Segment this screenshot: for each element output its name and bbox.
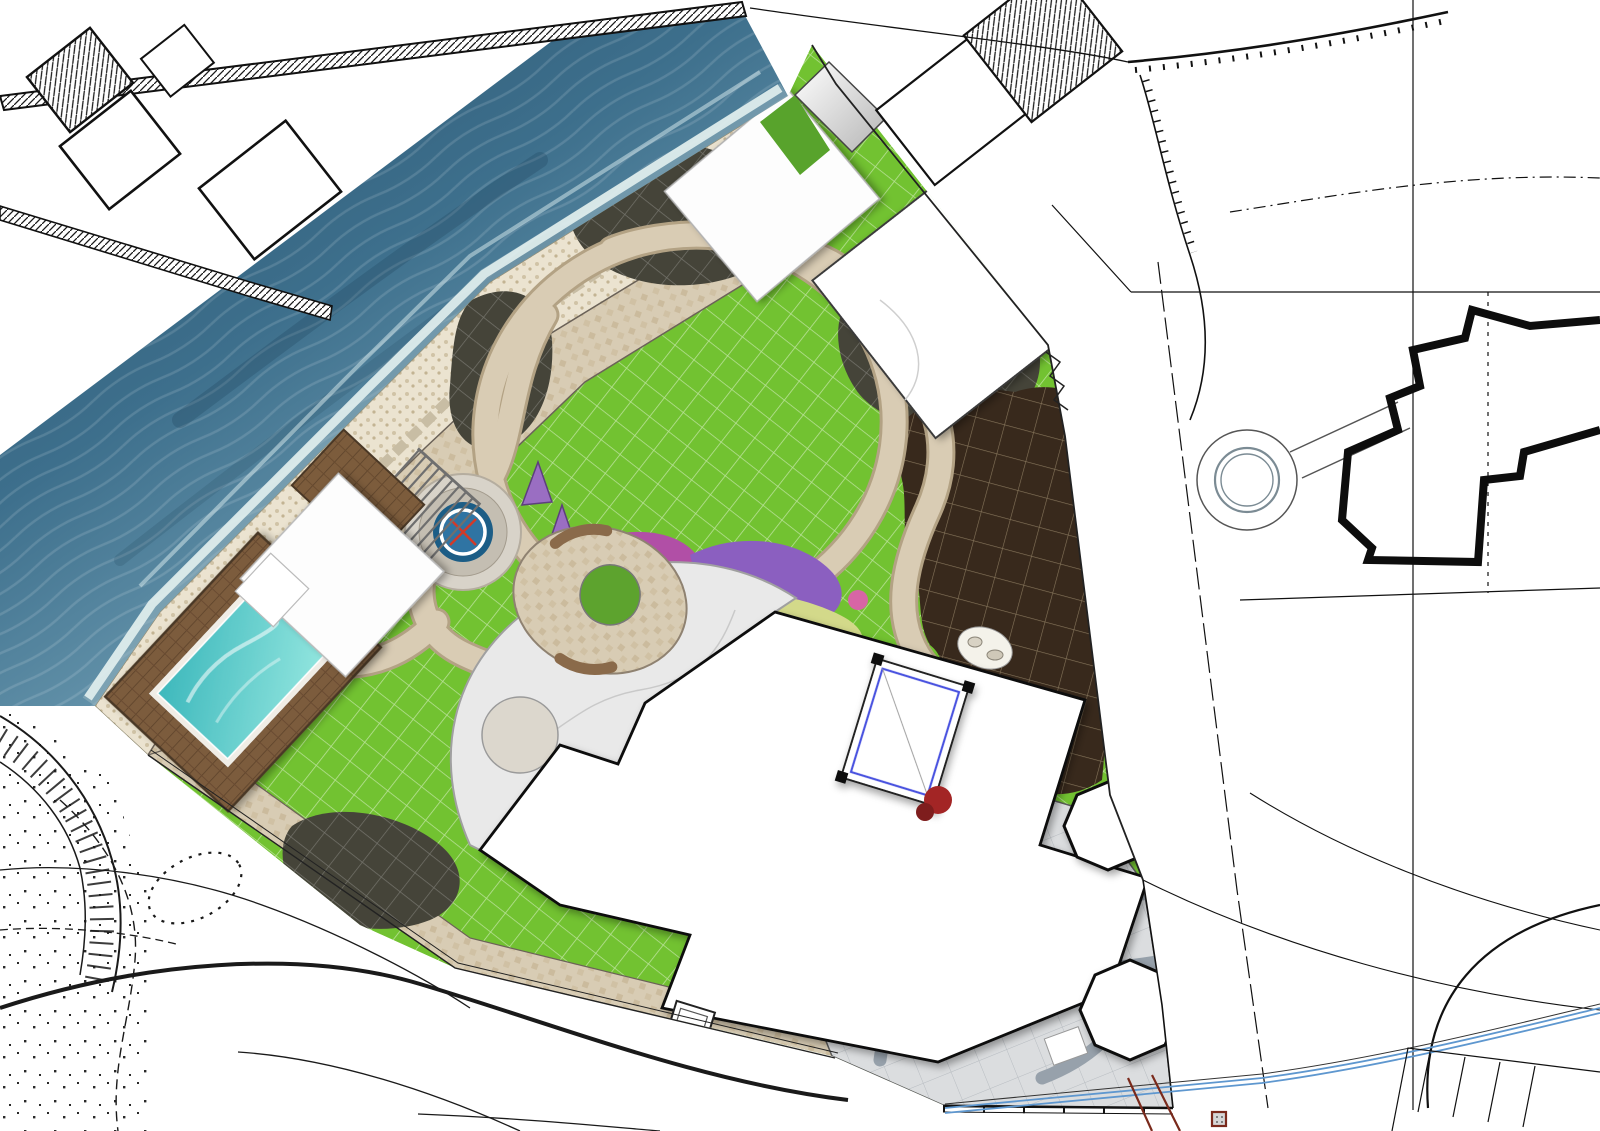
site-plan-drawing: [0, 0, 1600, 1131]
red-shrub: [916, 803, 934, 821]
site-plan-canvas: [0, 0, 1600, 1131]
